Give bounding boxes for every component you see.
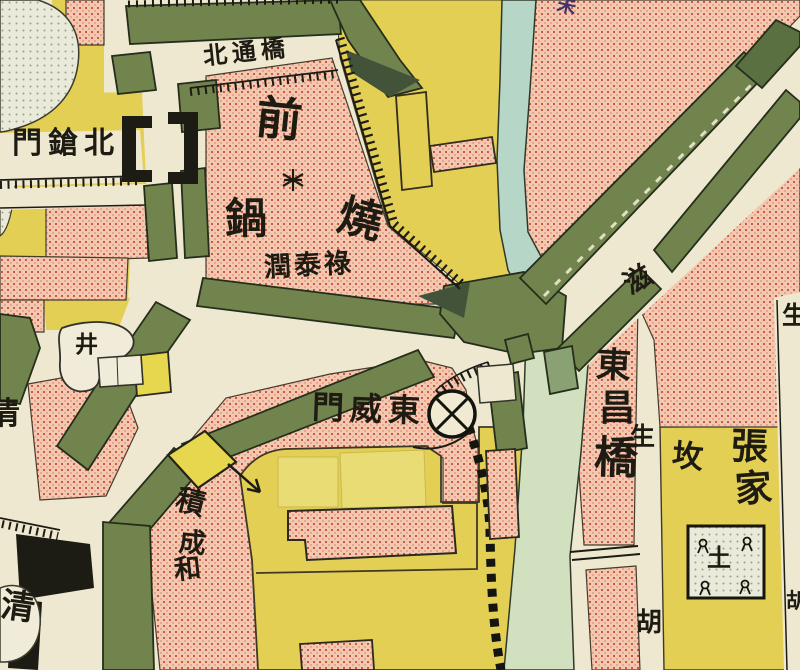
map-artwork xyxy=(0,0,800,670)
map-screenshot: 北通橋 門鎗北 前 鍋 燒 潤泰祿 門威東 東 昌 橋 滋 生 胡 坆 張 家 … xyxy=(0,0,800,670)
building-l-shape xyxy=(288,506,456,560)
grave-plot-box xyxy=(688,526,764,598)
